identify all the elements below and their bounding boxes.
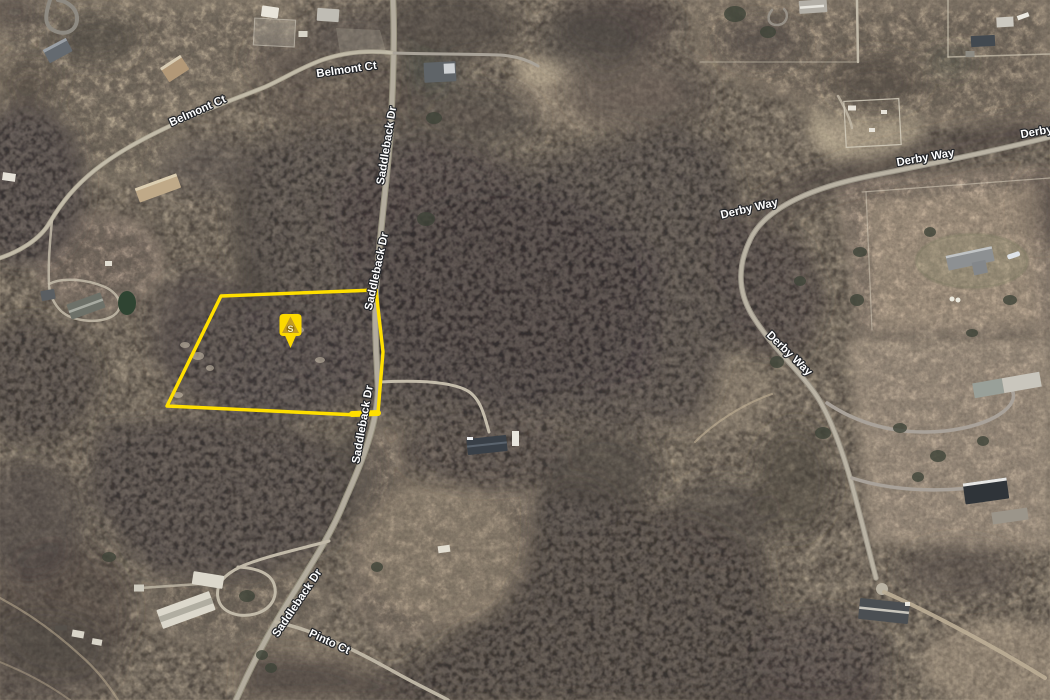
svg-text:S: S <box>287 324 293 334</box>
